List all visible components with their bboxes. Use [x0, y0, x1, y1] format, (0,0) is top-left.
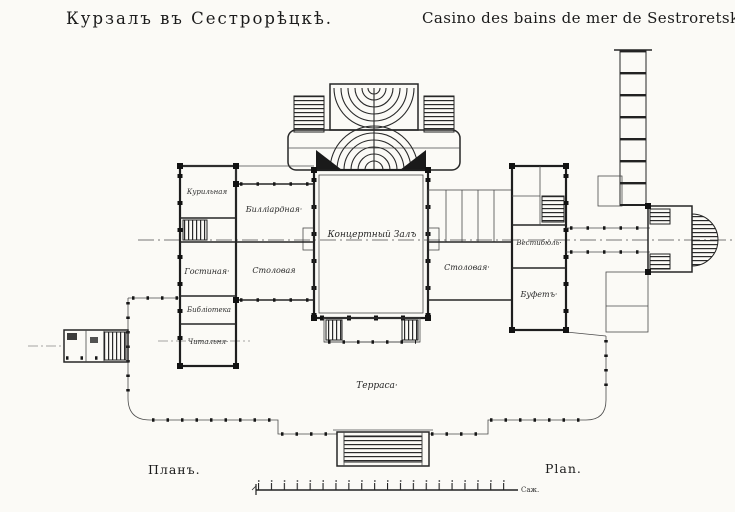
side-porch-right — [428, 228, 439, 250]
room-label-drawing-room: Гостиная· — [183, 267, 229, 276]
room-label-reading-room: Читальня· — [188, 338, 228, 346]
stair-left — [294, 96, 324, 132]
side-porch-left — [303, 228, 314, 250]
right-wing: Столовая· Вестибюль· Буфетъ· — [428, 166, 566, 330]
apse-steps — [692, 214, 718, 266]
room-label-billiard: Билліардная· — [245, 205, 303, 214]
stall-rooms — [428, 190, 512, 242]
grand-staircase — [333, 430, 433, 466]
scale-bar: Саж. — [252, 481, 539, 495]
amphitheater-steps-upper — [334, 88, 414, 128]
title-french: Casino des bains de mer de Sestroretsk. — [422, 9, 735, 27]
room-label-concert-hall: Концертный Залъ — [327, 230, 417, 240]
dock-steps — [104, 332, 126, 360]
centerlines — [28, 240, 734, 346]
stage-block — [288, 84, 460, 170]
room-label-terrace: Терраса· — [356, 381, 398, 391]
hall-porch — [324, 318, 420, 342]
left-wing: Курильная Билліардная· Гостиная· Столова… — [180, 166, 314, 366]
room-label-buffet: Буфетъ· — [520, 290, 558, 299]
scale-unit-label: Саж. — [521, 486, 539, 494]
sea-pavilion — [598, 176, 718, 332]
floor-plan-drawing: Курзалъ въ Сестрорѣцкѣ. Casino des bains… — [0, 0, 735, 512]
concert-hall: Концертный Залъ — [303, 170, 439, 318]
stair-small-right-wing — [542, 196, 564, 222]
gallery-bridge — [614, 50, 652, 206]
room-label-library: Библіотека — [186, 306, 231, 314]
room-label-dining-right: Столовая· — [444, 263, 490, 272]
pavilion-upper-room — [598, 176, 622, 206]
pavilion-lower-room — [606, 272, 648, 332]
room-label-vestibule: Вестибюль· — [515, 239, 561, 247]
caption-plan-russian: Планъ. — [148, 462, 201, 477]
title-russian: Курзалъ въ Сестрорѣцкѣ. — [66, 9, 333, 28]
stair-small-left-wing — [183, 220, 207, 240]
caption-plan-french: Plan. — [545, 461, 582, 476]
stair-right — [424, 96, 454, 132]
pier-dock — [64, 330, 128, 362]
room-label-dining-left: Столовая — [252, 266, 295, 275]
plan-sheet: Курзалъ въ Сестрорѣцкѣ. Casino des bains… — [0, 0, 735, 512]
room-label-smoking: Курильная — [186, 188, 228, 196]
